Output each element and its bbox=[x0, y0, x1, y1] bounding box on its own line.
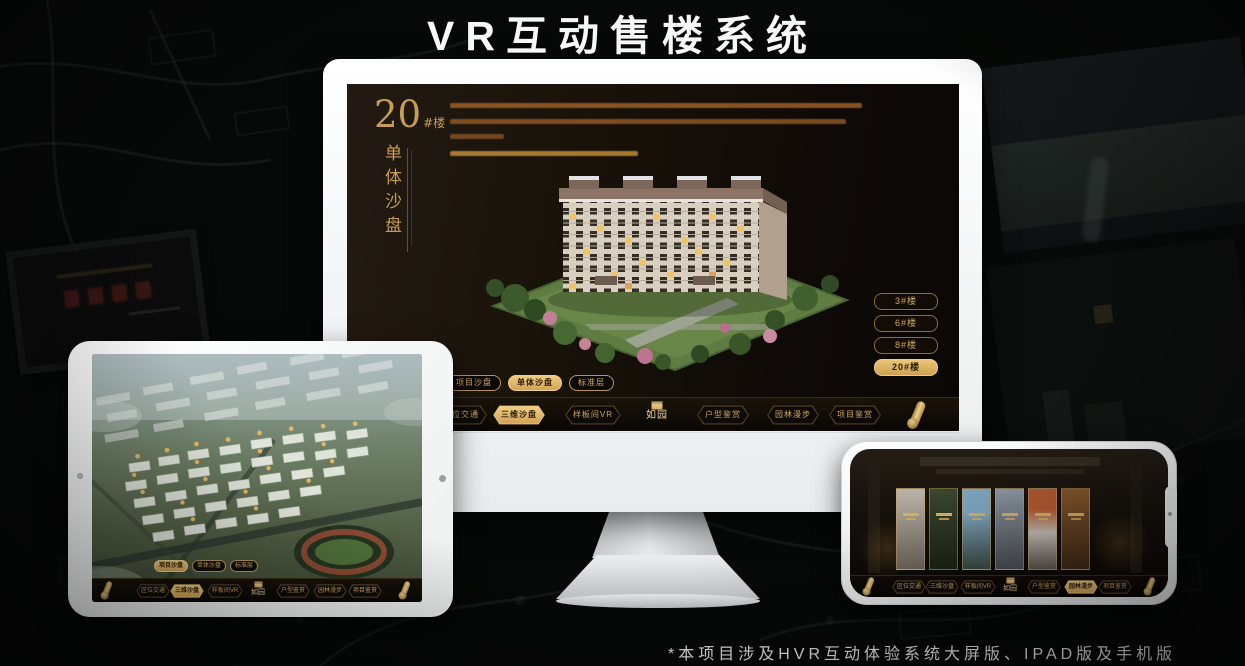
plaque-title-line bbox=[56, 263, 152, 279]
gallery-card[interactable] bbox=[962, 488, 991, 570]
phone-screen: 区位交通 三维沙盘 样板间VR 如园 户型鉴赏 园林漫步 项目鉴赏 bbox=[850, 449, 1168, 597]
lamp-glow bbox=[1090, 513, 1150, 573]
phone-brand-logo: 如园 bbox=[1003, 577, 1017, 592]
tablet-nav-item-garden-walk[interactable]: 园林漫步 bbox=[312, 584, 348, 598]
monitor-stand-foot bbox=[556, 594, 760, 608]
tab-single-sandbox[interactable]: 单体沙盘 bbox=[508, 375, 562, 391]
phone-nav-item-garden-walk[interactable]: 园林漫步 bbox=[1063, 580, 1099, 594]
building-button-6[interactable]: 6#楼 bbox=[874, 315, 938, 332]
scroll-icon[interactable] bbox=[101, 580, 113, 598]
seal-icon bbox=[254, 581, 263, 588]
sandbox-subtabs: 项目沙盘 单体沙盘 标准层 bbox=[447, 375, 614, 391]
building-heading: 20#楼 bbox=[374, 96, 445, 133]
brand-logo: 如园 bbox=[646, 401, 668, 421]
phone-notch bbox=[1165, 486, 1177, 548]
gallery-card[interactable] bbox=[1061, 488, 1090, 570]
tablet-brand-logo: 如园 bbox=[251, 581, 265, 596]
building-button-3[interactable]: 3#楼 bbox=[874, 293, 938, 310]
description-text-line bbox=[450, 103, 862, 108]
tablet-nav-item-project-gallery[interactable]: 项目鉴赏 bbox=[347, 584, 383, 598]
building-number: 20 bbox=[374, 93, 421, 136]
gallery-card-strip bbox=[896, 488, 1090, 570]
phone-bottom-nav: 区位交通 三维沙盘 样板间VR 如园 户型鉴赏 园林漫步 项目鉴赏 bbox=[850, 575, 1168, 597]
brand-logo-text: 如园 bbox=[1003, 585, 1017, 592]
scroll-icon[interactable] bbox=[863, 576, 875, 594]
tablet-camera-icon bbox=[77, 473, 83, 479]
brand-logo-text: 如园 bbox=[646, 411, 668, 421]
gallery-card[interactable] bbox=[896, 488, 925, 570]
page-subtitle-vertical: 单体沙盘 bbox=[379, 144, 404, 274]
nav-item-3d-sandbox[interactable]: 三维沙盘 bbox=[491, 405, 547, 425]
description-text-line bbox=[450, 119, 846, 124]
building-selector: 3#楼 6#楼 8#楼 20#楼 bbox=[874, 293, 938, 376]
phone-nav-item-project-gallery[interactable]: 项目鉴赏 bbox=[1097, 580, 1133, 594]
tablet-nav-item-location-traffic[interactable]: 区位交通 bbox=[135, 584, 171, 598]
tab-project-sandbox[interactable]: 项目沙盘 bbox=[447, 375, 501, 391]
plaque-caption-line bbox=[128, 306, 180, 315]
building-button-8[interactable]: 8#楼 bbox=[874, 337, 938, 354]
tablet-nav-item-floorplans[interactable]: 户型鉴赏 bbox=[275, 584, 311, 598]
phone-camera-icon bbox=[1168, 512, 1172, 516]
nav-item-garden-walk[interactable]: 园林漫步 bbox=[765, 405, 821, 425]
tablet-bottom-nav: 区位交通 三维沙盘 样板间VR 如园 户型鉴赏 园林漫步 项目鉴赏 bbox=[92, 578, 422, 602]
nav-item-project-gallery[interactable]: 项目鉴赏 bbox=[827, 405, 883, 425]
tablet-sandbox-subtabs: 项目沙盘 单体沙盘 标准层 bbox=[154, 560, 258, 572]
tab-standard-floor[interactable]: 标准层 bbox=[569, 375, 614, 391]
footnote: *本项目涉及HVR互动体验系统大屏版、IPAD版及手机版 bbox=[668, 640, 1176, 664]
gallery-card[interactable] bbox=[995, 488, 1024, 570]
gallery-card[interactable] bbox=[1028, 488, 1057, 570]
phone-nav-item-showroom-vr[interactable]: 样板间VR bbox=[959, 580, 997, 594]
phone-nav-item-3d-sandbox[interactable]: 三维沙盘 bbox=[924, 580, 960, 594]
scroll-icon[interactable] bbox=[908, 400, 926, 427]
tablet-home-button[interactable] bbox=[439, 475, 446, 482]
entrance-beam-2 bbox=[936, 469, 1084, 474]
phone-nav-item-location-traffic[interactable]: 区位交通 bbox=[891, 580, 927, 594]
tablet-nav-item-3d-sandbox[interactable]: 三维沙盘 bbox=[169, 584, 205, 598]
brand-logo-text: 如园 bbox=[251, 589, 265, 596]
building-number-suffix: #楼 bbox=[423, 116, 445, 130]
building-3d-render bbox=[475, 148, 865, 383]
tablet-device: 项目沙盘 单体沙盘 标准层 区位交通 三维沙盘 样板间VR 如园 户型鉴赏 园林… bbox=[68, 341, 453, 617]
building-button-20[interactable]: 20#楼 bbox=[874, 359, 938, 376]
description-text-line bbox=[450, 134, 504, 139]
phone-device: 区位交通 三维沙盘 样板间VR 如园 户型鉴赏 园林漫步 项目鉴赏 bbox=[841, 441, 1177, 605]
tablet-tab-standard-floor[interactable]: 标准层 bbox=[230, 560, 258, 572]
scroll-icon[interactable] bbox=[399, 580, 411, 598]
tablet-tab-project-sandbox[interactable]: 项目沙盘 bbox=[154, 560, 188, 572]
nav-item-showroom-vr[interactable]: 样板间VR bbox=[563, 405, 623, 425]
gallery-card[interactable] bbox=[929, 488, 958, 570]
seal-icon bbox=[1006, 577, 1015, 584]
entrance-beam bbox=[920, 457, 1100, 466]
tablet-nav-item-showroom-vr[interactable]: 样板间VR bbox=[206, 584, 244, 598]
tablet-screen: 项目沙盘 单体沙盘 标准层 区位交通 三维沙盘 样板间VR 如园 户型鉴赏 园林… bbox=[92, 354, 422, 602]
monitor-stand bbox=[588, 510, 724, 558]
subtitle-rule-2 bbox=[411, 150, 412, 246]
phone-nav-item-floorplans[interactable]: 户型鉴赏 bbox=[1026, 580, 1062, 594]
subtitle-rule bbox=[407, 148, 408, 252]
nav-item-floorplans[interactable]: 户型鉴赏 bbox=[695, 405, 751, 425]
page-title: VR互动售楼系统 bbox=[0, 2, 1245, 62]
tablet-tab-single-sandbox[interactable]: 单体沙盘 bbox=[192, 560, 226, 572]
scroll-icon[interactable] bbox=[1144, 576, 1156, 594]
vr-sales-poster: VR互动售楼系统 20#楼 单体沙盘 bbox=[0, 0, 1245, 666]
seal-icon bbox=[651, 401, 663, 410]
